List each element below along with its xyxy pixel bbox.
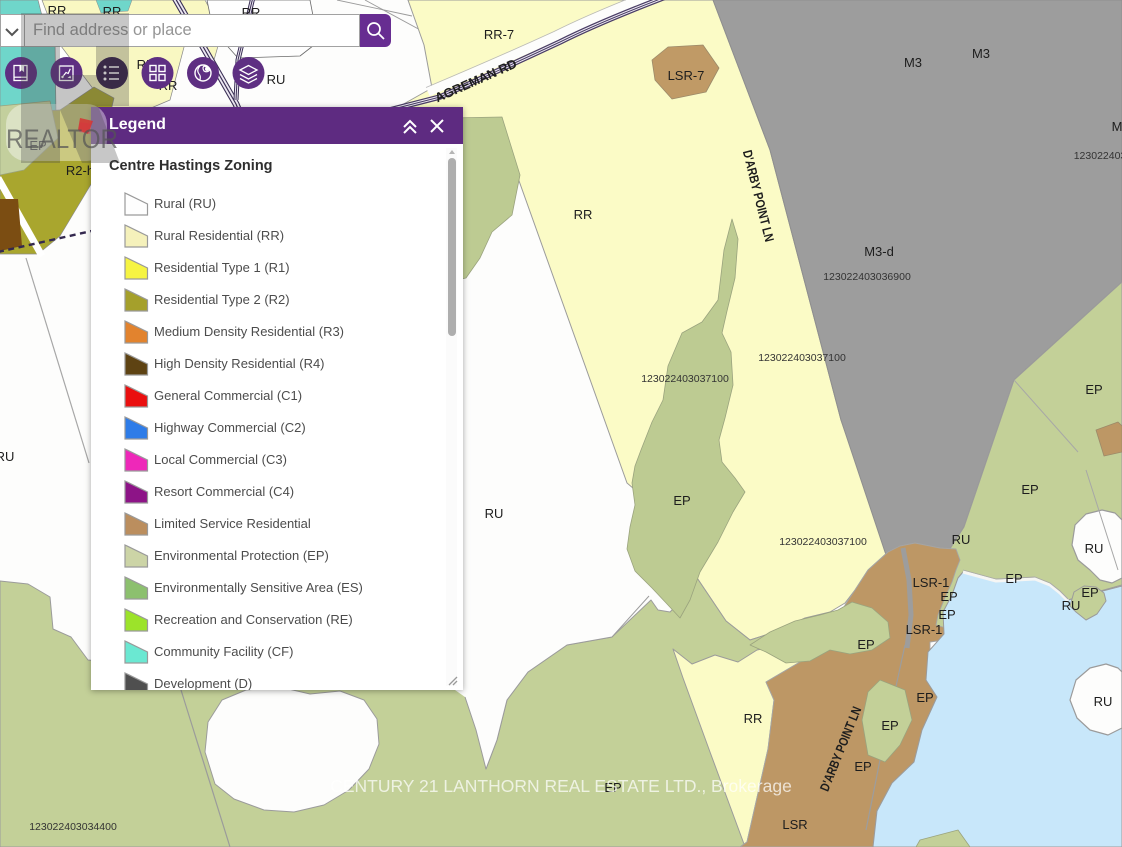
svg-text:RU: RU: [1062, 598, 1081, 613]
svg-text:EP: EP: [940, 589, 957, 604]
svg-text:RR: RR: [744, 711, 763, 726]
svg-text:EP: EP: [1081, 585, 1098, 600]
svg-text:LSR-1: LSR-1: [913, 575, 950, 590]
svg-text:EP: EP: [673, 493, 690, 508]
svg-text:LSR: LSR: [782, 817, 807, 832]
svg-text:M3-d: M3-d: [864, 244, 894, 259]
svg-text:EP: EP: [604, 780, 621, 795]
svg-text:LSR-7: LSR-7: [668, 68, 705, 83]
svg-text:123022403037100: 123022403037100: [758, 352, 846, 364]
svg-text:RU: RU: [1085, 541, 1104, 556]
svg-text:EP: EP: [916, 690, 933, 705]
svg-text:RR-7: RR-7: [484, 27, 514, 42]
svg-text:123022403: 123022403: [1074, 150, 1122, 162]
svg-text:123022403036900: 123022403036900: [823, 271, 911, 283]
svg-text:RU: RU: [952, 532, 971, 547]
svg-text:LSR-1: LSR-1: [906, 622, 943, 637]
svg-text:RU: RU: [1094, 694, 1113, 709]
svg-text:R2-h: R2-h: [66, 163, 94, 178]
svg-text:M3: M3: [904, 55, 922, 70]
svg-text:M3: M3: [972, 46, 990, 61]
svg-text:EP: EP: [1005, 571, 1022, 586]
svg-text:EP: EP: [857, 637, 874, 652]
svg-text:EP: EP: [1021, 482, 1038, 497]
svg-text:123022403037100: 123022403037100: [641, 373, 729, 385]
svg-text:M: M: [1112, 119, 1122, 134]
svg-text:EP: EP: [1085, 382, 1102, 397]
svg-text:RU: RU: [485, 506, 504, 521]
svg-text:EP: EP: [29, 138, 46, 153]
svg-text:RU: RU: [0, 449, 14, 464]
svg-text:123022403034400: 123022403034400: [29, 821, 117, 833]
svg-text:RR: RR: [574, 207, 593, 222]
svg-text:EP: EP: [938, 607, 955, 622]
svg-text:EP: EP: [881, 718, 898, 733]
svg-text:EP: EP: [854, 759, 871, 774]
svg-text:123022403037100: 123022403037100: [779, 536, 867, 548]
